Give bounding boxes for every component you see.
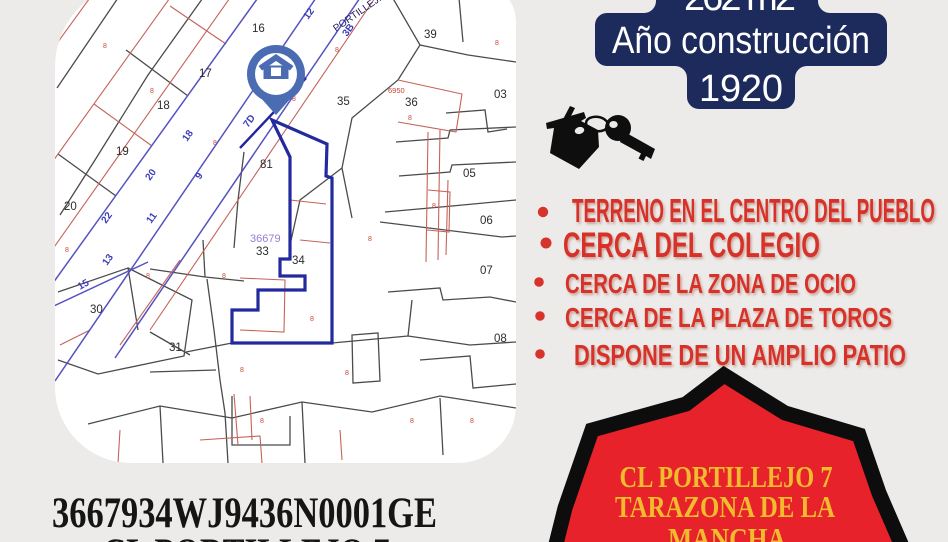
svg-text:36: 36 — [405, 97, 418, 109]
svg-text:03: 03 — [494, 89, 507, 101]
svg-text:39: 39 — [424, 29, 437, 41]
svg-text:8: 8 — [408, 115, 412, 122]
svg-text:262 m2: 262 m2 — [684, 0, 796, 19]
svg-text:8: 8 — [432, 203, 436, 210]
svg-text:MANCHA: MANCHA — [668, 521, 787, 542]
svg-text:19: 19 — [116, 146, 129, 158]
svg-text:31: 31 — [169, 342, 182, 354]
svg-text:8: 8 — [368, 236, 372, 243]
svg-text:18: 18 — [157, 100, 170, 112]
svg-text:35: 35 — [337, 96, 350, 108]
svg-text:1920: 1920 — [699, 68, 783, 110]
svg-text:17: 17 — [199, 68, 212, 80]
svg-text:8: 8 — [150, 88, 154, 95]
svg-text:6950: 6950 — [388, 86, 405, 95]
svg-text:CERCA DE LA ZONA DE OCIO: CERCA DE LA ZONA DE OCIO — [565, 268, 856, 299]
svg-text:06: 06 — [480, 215, 493, 227]
svg-text:8: 8 — [495, 40, 499, 47]
svg-text:33: 33 — [256, 246, 269, 258]
svg-text:CERCA DE LA PLAZA DE TOROS: CERCA DE LA PLAZA DE TOROS — [565, 302, 892, 333]
svg-text:36679: 36679 — [250, 233, 281, 245]
svg-text:8: 8 — [103, 43, 107, 50]
svg-text:20: 20 — [64, 201, 77, 213]
svg-text:TARAZONA DE LA: TARAZONA DE LA — [615, 489, 835, 524]
svg-text:05: 05 — [463, 168, 476, 180]
svg-text:CERCA DEL COLEGIO: CERCA DEL COLEGIO — [563, 226, 820, 265]
svg-text:TERRENO EN EL CENTRO DEL PUEBL: TERRENO EN EL CENTRO DEL PUEBLO — [572, 192, 935, 229]
svg-text:07: 07 — [480, 265, 493, 277]
svg-text:8: 8 — [240, 367, 244, 374]
svg-text:3667934WJ9436N0001GE: 3667934WJ9436N0001GE — [52, 490, 437, 537]
svg-text:08: 08 — [494, 333, 507, 345]
svg-text:DISPONE DE UN AMPLIO PATIO: DISPONE DE UN AMPLIO PATIO — [574, 340, 906, 372]
svg-text:81: 81 — [260, 159, 273, 171]
svg-text:8: 8 — [410, 418, 414, 425]
svg-text:8: 8 — [146, 273, 150, 280]
svg-text:Año construcción: Año construcción — [612, 20, 870, 62]
svg-text:8: 8 — [310, 316, 314, 323]
svg-text:8: 8 — [65, 247, 69, 254]
svg-text:8: 8 — [222, 273, 226, 280]
svg-text:8: 8 — [470, 418, 474, 425]
svg-text:8: 8 — [335, 47, 339, 54]
svg-text:16: 16 — [252, 23, 265, 35]
svg-text:CL PORTILLEJO 7: CL PORTILLEJO 7 — [103, 531, 390, 542]
svg-text:8: 8 — [345, 370, 349, 377]
svg-text:34: 34 — [292, 255, 305, 267]
svg-text:30: 30 — [90, 304, 103, 316]
svg-text:8: 8 — [260, 418, 264, 425]
